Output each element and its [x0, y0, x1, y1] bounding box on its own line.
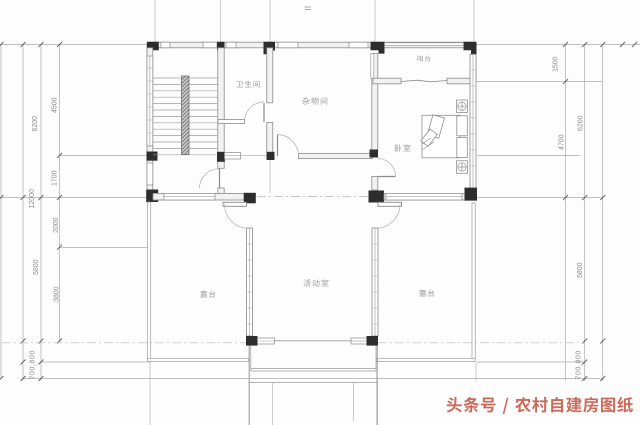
- svg-text:1700: 1700: [52, 170, 59, 186]
- svg-text:4700: 4700: [559, 134, 566, 150]
- svg-text:1500: 1500: [553, 56, 560, 72]
- svg-text:5800: 5800: [577, 262, 584, 278]
- svg-text:3800: 3800: [54, 286, 61, 302]
- svg-text:12000: 12000: [29, 189, 36, 209]
- svg-text:700,800: 700,800: [576, 350, 583, 380]
- svg-text:5800: 5800: [33, 259, 40, 275]
- svg-text:6200: 6200: [578, 115, 585, 131]
- svg-text:4500: 4500: [52, 97, 59, 113]
- svg-text:2000: 2000: [53, 217, 60, 233]
- svg-text:700,800: 700,800: [30, 350, 37, 380]
- svg-text:6200: 6200: [32, 116, 39, 132]
